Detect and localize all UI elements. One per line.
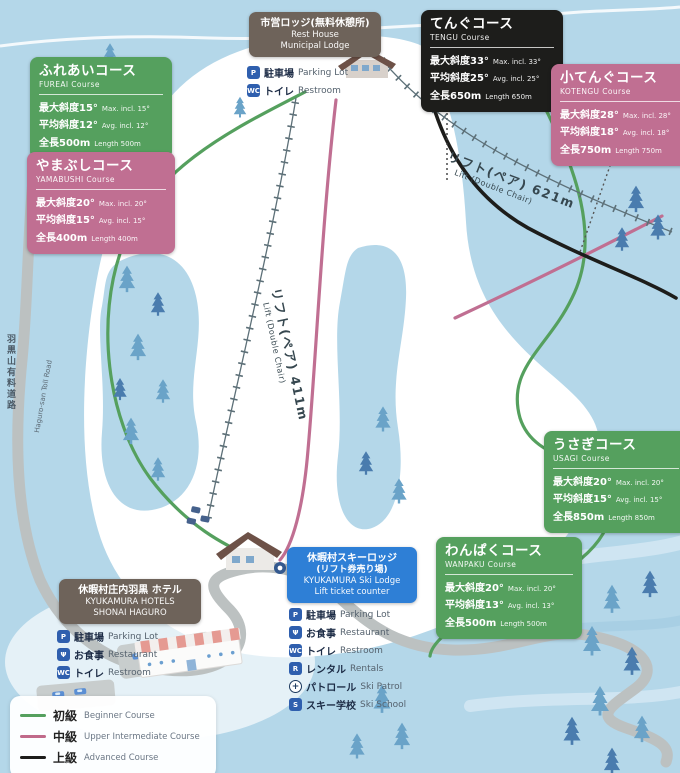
service-rental: RレンタルRentals — [289, 661, 406, 676]
facility-title: 休暇村庄内羽黒 ホテル — [66, 584, 194, 597]
legend-advanced: 上級 Advanced Course — [20, 749, 206, 766]
facility-title: 市営ロッジ(無料休憩所) — [256, 17, 374, 30]
service-restroom: WCトイレRestroom — [57, 665, 158, 680]
course-box-kotengu: 小てんぐコース KOTENGU Course 最大斜度28°Max. incl.… — [551, 64, 680, 166]
spec-length: 全長500mLength 500m — [445, 614, 573, 629]
facility-line: KYUKAMURA Ski Lodge — [294, 576, 410, 587]
parking-icon: P — [247, 66, 260, 79]
divider — [445, 574, 573, 575]
course-subtitle: USAGI Course — [553, 454, 679, 463]
spec-length: 全長650mLength 650m — [430, 87, 554, 102]
restaurant-icon: Ψ — [57, 648, 70, 661]
spec-max-incline: 最大斜度28°Max. incl. 28° — [560, 106, 680, 121]
spec-avg-incline: 平均斜度25°Avg. incl. 25° — [430, 69, 554, 84]
course-box-fureai: ふれあいコース FUREAI Course 最大斜度15°Max. incl. … — [30, 57, 172, 159]
divider — [560, 101, 680, 102]
course-subtitle: FUREAI Course — [39, 80, 163, 89]
restroom-icon: WC — [57, 666, 70, 679]
facility-box-hotel: 休暇村庄内羽黒 ホテル KYUKAMURA HOTELS SHONAI HAGU… — [59, 579, 201, 624]
spec-avg-incline: 平均斜度13°Avg. incl. 13° — [445, 596, 573, 611]
tree-island-center — [337, 245, 406, 529]
spec-avg-incline: 平均斜度18°Avg. incl. 18° — [560, 123, 680, 138]
service-parking: P駐車場Parking Lot — [247, 65, 348, 80]
service-restroom: WCトイレRestroom — [247, 83, 348, 98]
service-restroom: WCトイレRestroom — [289, 643, 406, 658]
restaurant-icon: Ψ — [289, 626, 302, 639]
course-subtitle: YAMABUSHI Course — [36, 175, 166, 184]
spec-length: 全長850mLength 850m — [553, 508, 679, 523]
facility-line: Lift ticket counter — [294, 587, 410, 598]
service-parking: P駐車場Parking Lot — [289, 607, 406, 622]
legend-intermediate: 中級 Upper Intermediate Course — [20, 728, 206, 745]
divider — [430, 47, 554, 48]
course-box-usagi: うさぎコース USAGI Course 最大斜度20°Max. incl. 20… — [544, 431, 680, 533]
facility-subtitle: (リフト券売り場) — [294, 565, 410, 576]
ski-trail-map-page: ふれあいコース FUREAI Course 最大斜度15°Max. incl. … — [0, 0, 680, 773]
spec-max-incline: 最大斜度20°Max. incl. 20° — [445, 579, 573, 594]
spec-length: 全長400mLength 400m — [36, 229, 166, 244]
service-parking: P駐車場Parking Lot — [57, 629, 158, 644]
municipal-lodge-services: P駐車場Parking Lot WCトイレRestroom — [247, 62, 348, 101]
toll-road-label-ja: 羽黒山有料道路 — [4, 334, 17, 411]
spec-length: 全長500mLength 500m — [39, 134, 163, 149]
tree-island-left — [100, 253, 199, 511]
course-subtitle: KOTENGU Course — [560, 87, 680, 96]
parking-icon: P — [57, 630, 70, 643]
ski-lodge-services: P駐車場Parking Lot Ψお食事Restaurant WCトイレRest… — [289, 604, 406, 715]
spec-avg-incline: 平均斜度15°Avg. incl. 15° — [36, 211, 166, 226]
facility-line: SHONAI HAGURO — [66, 608, 194, 619]
spec-max-incline: 最大斜度33°Max. incl. 33° — [430, 52, 554, 67]
course-title: てんぐコース — [430, 17, 554, 32]
intermediate-line-swatch — [20, 735, 46, 739]
legend-beginner: 初級 Beginner Course — [20, 707, 206, 724]
spec-max-incline: 最大斜度20°Max. incl. 20° — [36, 194, 166, 209]
spec-length: 全長750mLength 750m — [560, 141, 680, 156]
restroom-icon: WC — [247, 84, 260, 97]
course-title: やまぶしコース — [36, 159, 166, 174]
beginner-line-swatch — [20, 714, 46, 718]
facility-line: KYUKAMURA HOTELS — [66, 597, 194, 608]
course-title: 小てんぐコース — [560, 71, 680, 86]
spec-avg-incline: 平均斜度12°Avg. incl. 12° — [39, 116, 163, 131]
service-ski-patrol: +パトロールSki Patrol — [289, 679, 406, 694]
spec-avg-incline: 平均斜度15°Avg. incl. 15° — [553, 490, 679, 505]
service-ski-school: Sスキー学校Ski School — [289, 697, 406, 712]
restroom-icon: WC — [289, 644, 302, 657]
facility-line: Rest House — [256, 30, 374, 41]
service-restaurant: Ψお食事Restaurant — [289, 625, 406, 640]
spec-max-incline: 最大斜度20°Max. incl. 20° — [553, 473, 679, 488]
course-box-yamabushi: やまぶしコース YAMABUSHI Course 最大斜度20°Max. inc… — [27, 152, 175, 254]
facility-line: Municipal Lodge — [256, 41, 374, 52]
course-title: わんぱくコース — [445, 544, 573, 559]
facility-box-ski-lodge: 休暇村スキーロッジ (リフト券売り場) KYUKAMURA Ski Lodge … — [287, 547, 417, 603]
course-title: うさぎコース — [553, 438, 679, 453]
course-box-tengu: てんぐコース TENGU Course 最大斜度33°Max. incl. 33… — [421, 10, 563, 112]
course-title: ふれあいコース — [39, 64, 163, 79]
advanced-line-swatch — [20, 756, 46, 760]
spec-max-incline: 最大斜度15°Max. incl. 15° — [39, 99, 163, 114]
divider — [39, 94, 163, 95]
facility-box-municipal-lodge: 市営ロッジ(無料休憩所) Rest House Municipal Lodge — [249, 12, 381, 57]
course-box-wanpaku: わんぱくコース WANPAKU Course 最大斜度20°Max. incl.… — [436, 537, 582, 639]
course-subtitle: WANPAKU Course — [445, 560, 573, 569]
service-restaurant: Ψお食事Restaurant — [57, 647, 158, 662]
facility-title: 休暇村スキーロッジ — [294, 552, 410, 565]
ski-school-icon: S — [289, 698, 302, 711]
hotel-services: P駐車場Parking Lot Ψお食事Restaurant WCトイレRest… — [57, 626, 158, 683]
course-subtitle: TENGU Course — [430, 33, 554, 42]
divider — [553, 468, 679, 469]
divider — [36, 189, 166, 190]
parking-icon: P — [289, 608, 302, 621]
legend-panel: 初級 Beginner Course 中級 Upper Intermediate… — [10, 696, 216, 773]
rental-icon: R — [289, 662, 302, 675]
ski-patrol-icon: + — [289, 680, 302, 693]
